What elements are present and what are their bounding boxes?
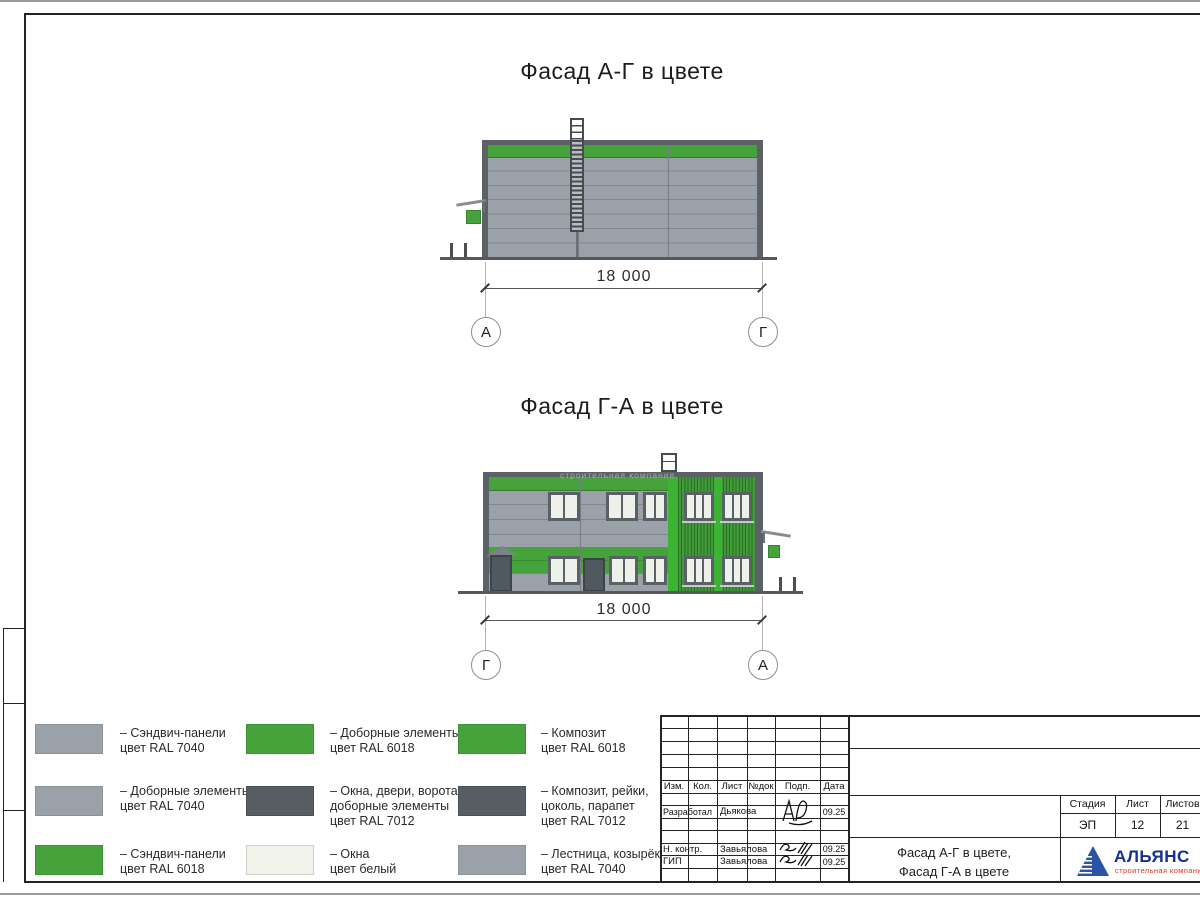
window-sill [720, 585, 754, 587]
window [609, 556, 638, 585]
stamp-date: 09.25 [820, 843, 848, 855]
bright-green-stripe [714, 477, 722, 592]
stamp-top-line [660, 715, 1200, 717]
facade1-parapet-strip [482, 140, 763, 145]
doc-title-line2: Фасад Г-А в цвете [848, 862, 1060, 881]
legend-swatch [35, 786, 103, 816]
margin-column-line [3, 628, 4, 882]
window [606, 492, 638, 521]
stamp-role: Н. контр. [660, 843, 717, 855]
stamp-name: Завьялова [717, 855, 775, 868]
bollard-icon [450, 243, 453, 258]
signature-icon [779, 796, 817, 826]
legend-swatch [246, 724, 314, 754]
roof-vent-line [663, 461, 675, 462]
facade1-vertical-joint [668, 145, 669, 258]
window [643, 556, 667, 585]
margin-divider [3, 810, 24, 811]
axis-circle-right: А [748, 650, 778, 680]
ground-line [440, 257, 777, 260]
sheet-top-edge [0, 0, 1200, 2]
facade1-title: Фасад А-Г в цвете [372, 58, 872, 85]
legend-swatch [458, 786, 526, 816]
stamp-name: Завьялова [717, 843, 775, 855]
facade2-title: Фасад Г-А в цвете [372, 393, 872, 420]
frame-left-line [24, 13, 26, 883]
dimension-line [485, 288, 763, 289]
stamp-col-podp: Подп. [775, 780, 820, 793]
sheets-value: 21 [1160, 813, 1200, 837]
ladder-icon [570, 142, 584, 232]
stamp-line [660, 793, 848, 794]
doc-title-line1: Фасад А-Г в цвете, [848, 843, 1060, 862]
entrance-door [490, 555, 512, 592]
window-sill [682, 521, 716, 523]
bollard-icon [779, 577, 782, 592]
legend-item: – Композитцвет RAL 6018 [541, 726, 626, 756]
stamp-line [660, 754, 848, 755]
window-triple [722, 492, 752, 521]
bollard-icon [793, 577, 796, 592]
stamp-line [660, 868, 848, 869]
axis-circle-right: Г [748, 317, 778, 347]
window-triple [684, 492, 714, 521]
stamp-date: 09.25 [820, 805, 848, 818]
window [548, 492, 580, 521]
canopy-post [483, 201, 485, 212]
dimension-line [485, 620, 763, 621]
stage-value: ЭП [1060, 813, 1115, 837]
facade1-right-corner [757, 140, 763, 258]
stamp-line [660, 818, 848, 819]
entrance-door [583, 558, 605, 592]
legend-item: – Доборные элементыцвет RAL 6018 [330, 726, 461, 756]
stamp-role: ГИП [660, 855, 717, 868]
dimension-value: 18 000 [485, 601, 763, 619]
dimension-value: 18 000 [485, 268, 763, 286]
ladder-rail [576, 232, 578, 258]
window-sill [682, 585, 716, 587]
facade1-green-band [488, 145, 757, 158]
legend-item: – Лестница, козырёкцвет RAL 7040 [541, 847, 660, 877]
sign-box [466, 210, 481, 224]
legend-item: – Доборные элементыцвет RAL 7040 [120, 784, 251, 814]
stamp-col-izm: Изм. [660, 780, 688, 793]
logo-subtitle: строительная компания [1115, 866, 1200, 875]
legend-swatch [458, 724, 526, 754]
stamp-role: Разработал [660, 805, 717, 818]
window [548, 556, 580, 585]
stamp-line [660, 830, 848, 831]
frame-bottom-line [24, 881, 1200, 883]
facade1-panels [488, 157, 757, 258]
legend-swatch [246, 786, 314, 816]
logo-name: АЛЬЯНС [1114, 847, 1190, 867]
margin-divider [3, 703, 24, 704]
frame-top-line [24, 13, 1200, 15]
bollard-icon [464, 243, 467, 258]
sign-box [768, 545, 780, 558]
canopy-icon [761, 530, 791, 538]
ground-line [458, 591, 803, 594]
window [643, 492, 667, 521]
facade2-vertical-joint [580, 477, 581, 592]
stamp-line [660, 741, 848, 742]
legend-item: – Композит, рейки,цоколь, парапетцвет RA… [541, 784, 649, 829]
doc-title: Фасад А-Г в цвете, Фасад Г-А в цвете [848, 843, 1060, 881]
legend-swatch [458, 845, 526, 875]
stamp-col-list: Лист [717, 780, 747, 793]
legend-item: – Сэндвич-панелицвет RAL 7040 [120, 726, 226, 756]
axis-circle-left: Г [471, 650, 501, 680]
stage-label: Стадия [1060, 795, 1115, 813]
stamp-name: Дьякова [717, 805, 775, 818]
stamp-col-ndok: №док [747, 780, 775, 793]
sheet-bottom-edge [0, 893, 1200, 895]
facade2-left-corner [483, 472, 489, 592]
legend-item: – Окнацвет белый [330, 847, 396, 877]
sheets-label: Листов [1160, 795, 1200, 813]
window-triple [684, 556, 714, 585]
drawing-sheet: { "sheet": { "facade1": { "title": "Фаса… [0, 0, 1200, 900]
legend-swatch [35, 845, 103, 875]
stamp-line [848, 748, 1200, 749]
bright-green-pilaster [668, 477, 678, 592]
stamp-date: 09.25 [820, 855, 848, 868]
legend-item: – Сэндвич-панелицвет RAL 6018 [120, 847, 226, 877]
canopy-post [763, 532, 765, 543]
stamp-col-kol: Кол. [688, 780, 717, 793]
watermark-text: строительная компания [560, 470, 675, 480]
stamp-line [848, 837, 1200, 838]
legend-item: – Окна, двери, ворота,доборные элементыц… [330, 784, 461, 829]
stamp-line [660, 767, 848, 768]
window-triple [722, 556, 752, 585]
logo-pyramid-icon [1076, 845, 1110, 877]
legend-swatch [246, 845, 314, 875]
axis-circle-left: А [471, 317, 501, 347]
legend-swatch [35, 724, 103, 754]
stamp-line [660, 728, 848, 729]
window-sill [720, 521, 754, 523]
margin-divider [3, 628, 24, 629]
signature-icon [777, 852, 819, 868]
sheet-label: Лист [1115, 795, 1160, 813]
stamp-col-data: Дата [820, 780, 848, 793]
ladder-cage-icon [570, 118, 584, 142]
sheet-value: 12 [1115, 813, 1160, 837]
